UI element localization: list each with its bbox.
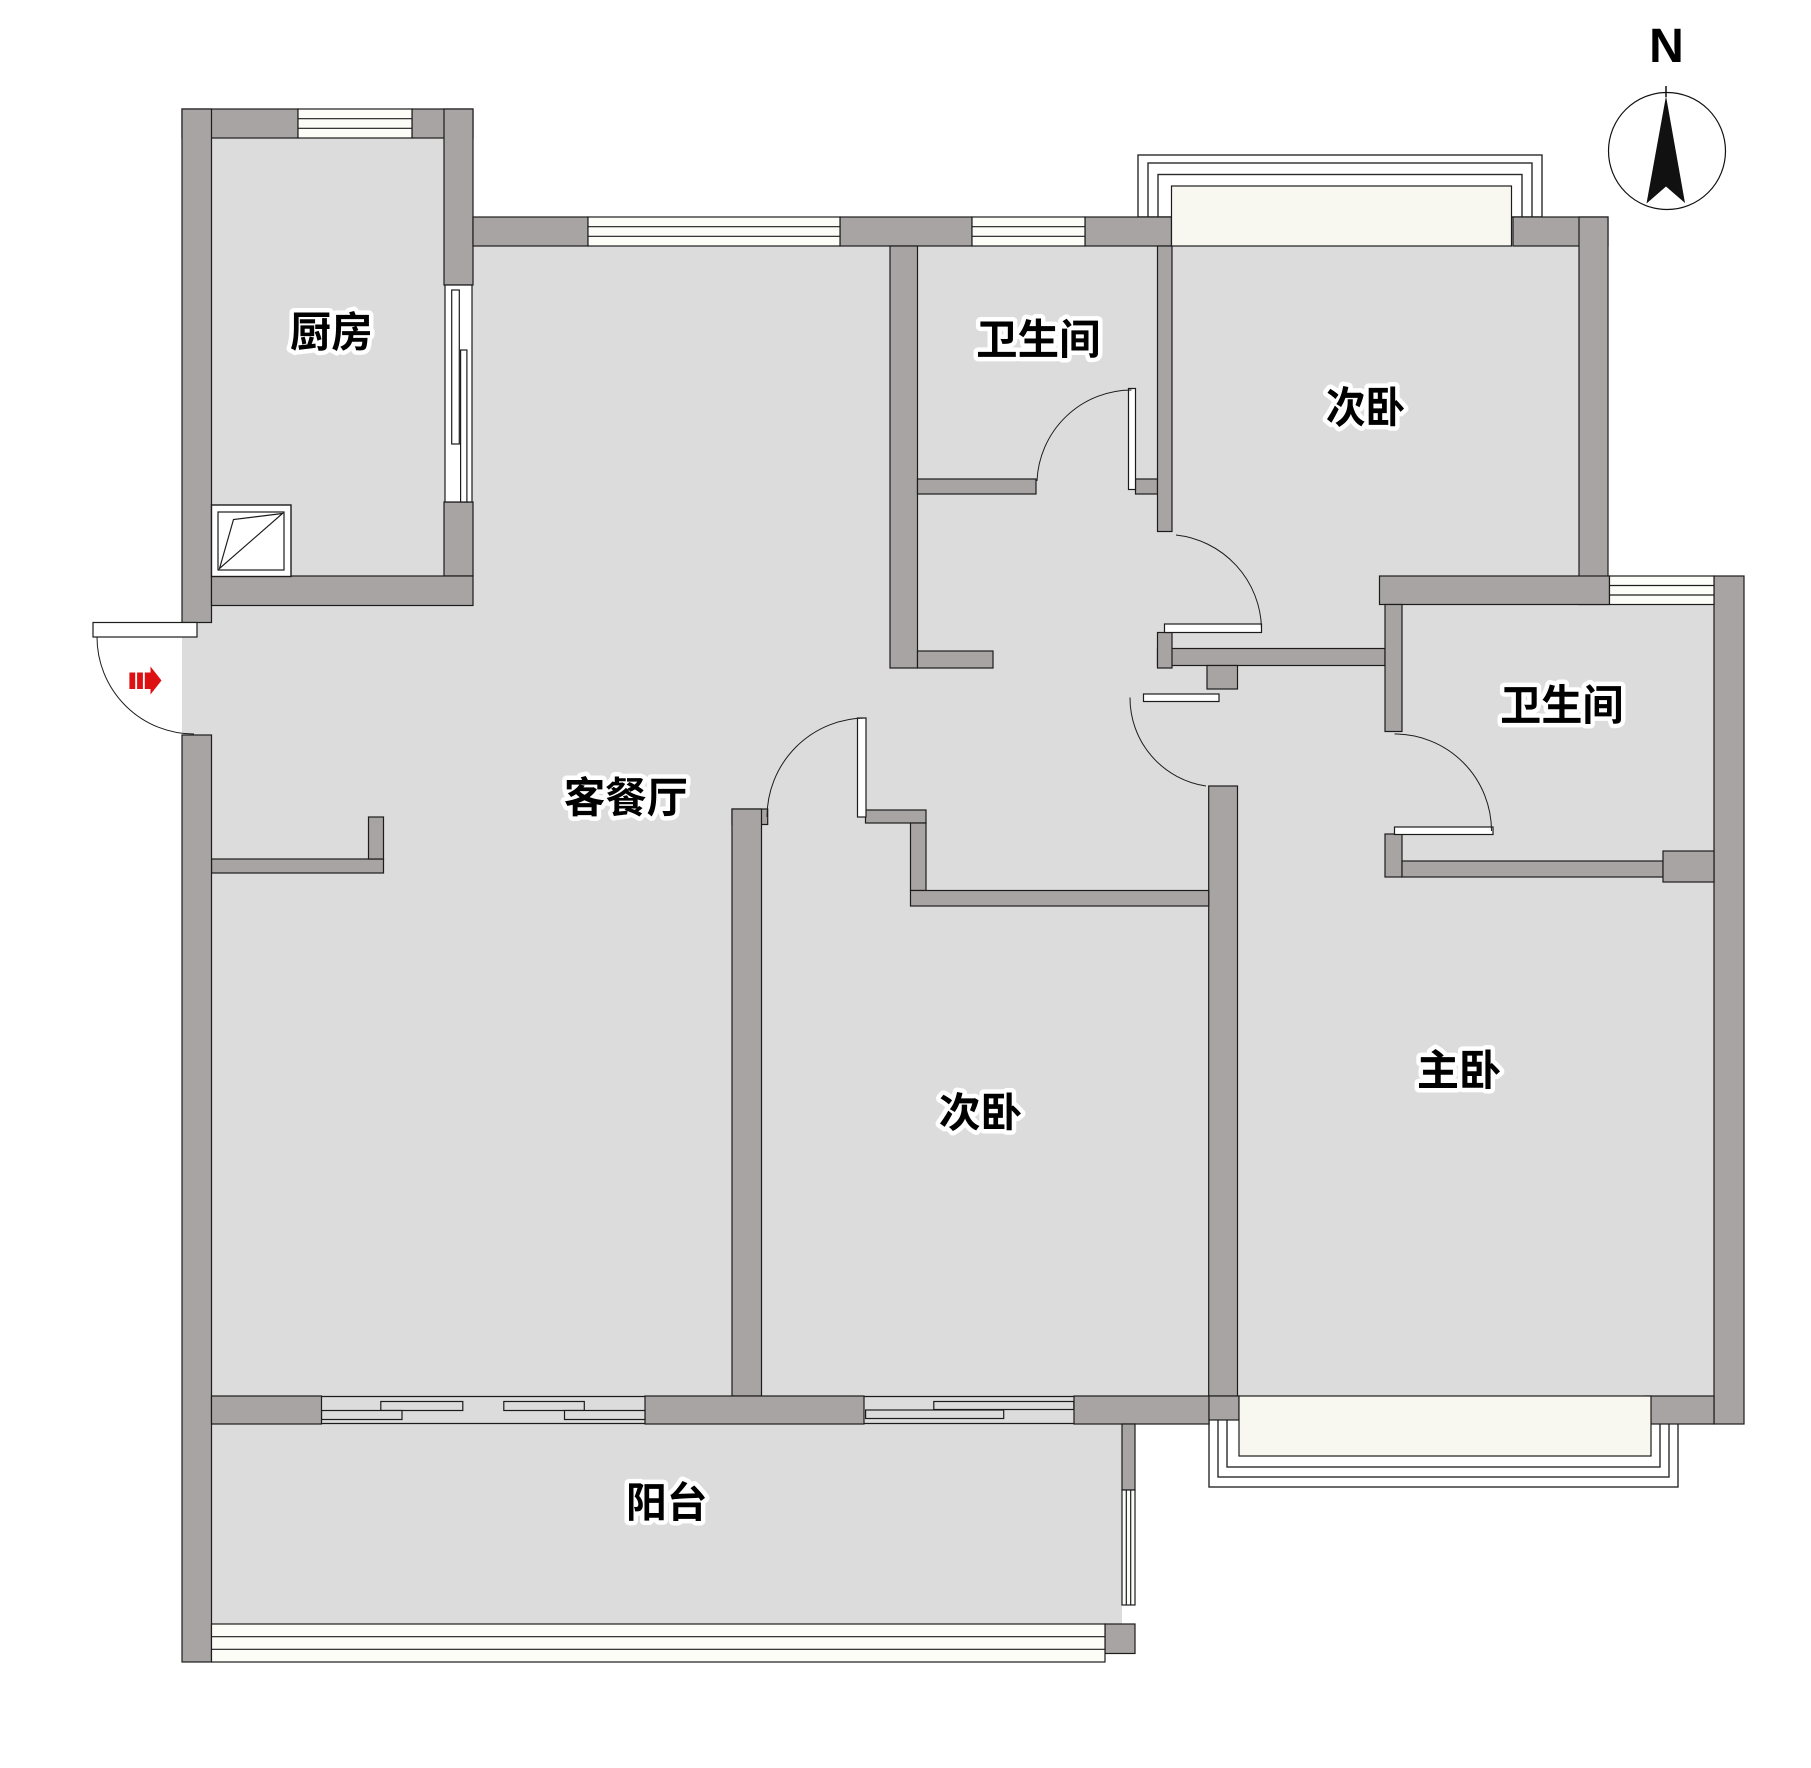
svg-text:N: N xyxy=(1649,20,1684,73)
